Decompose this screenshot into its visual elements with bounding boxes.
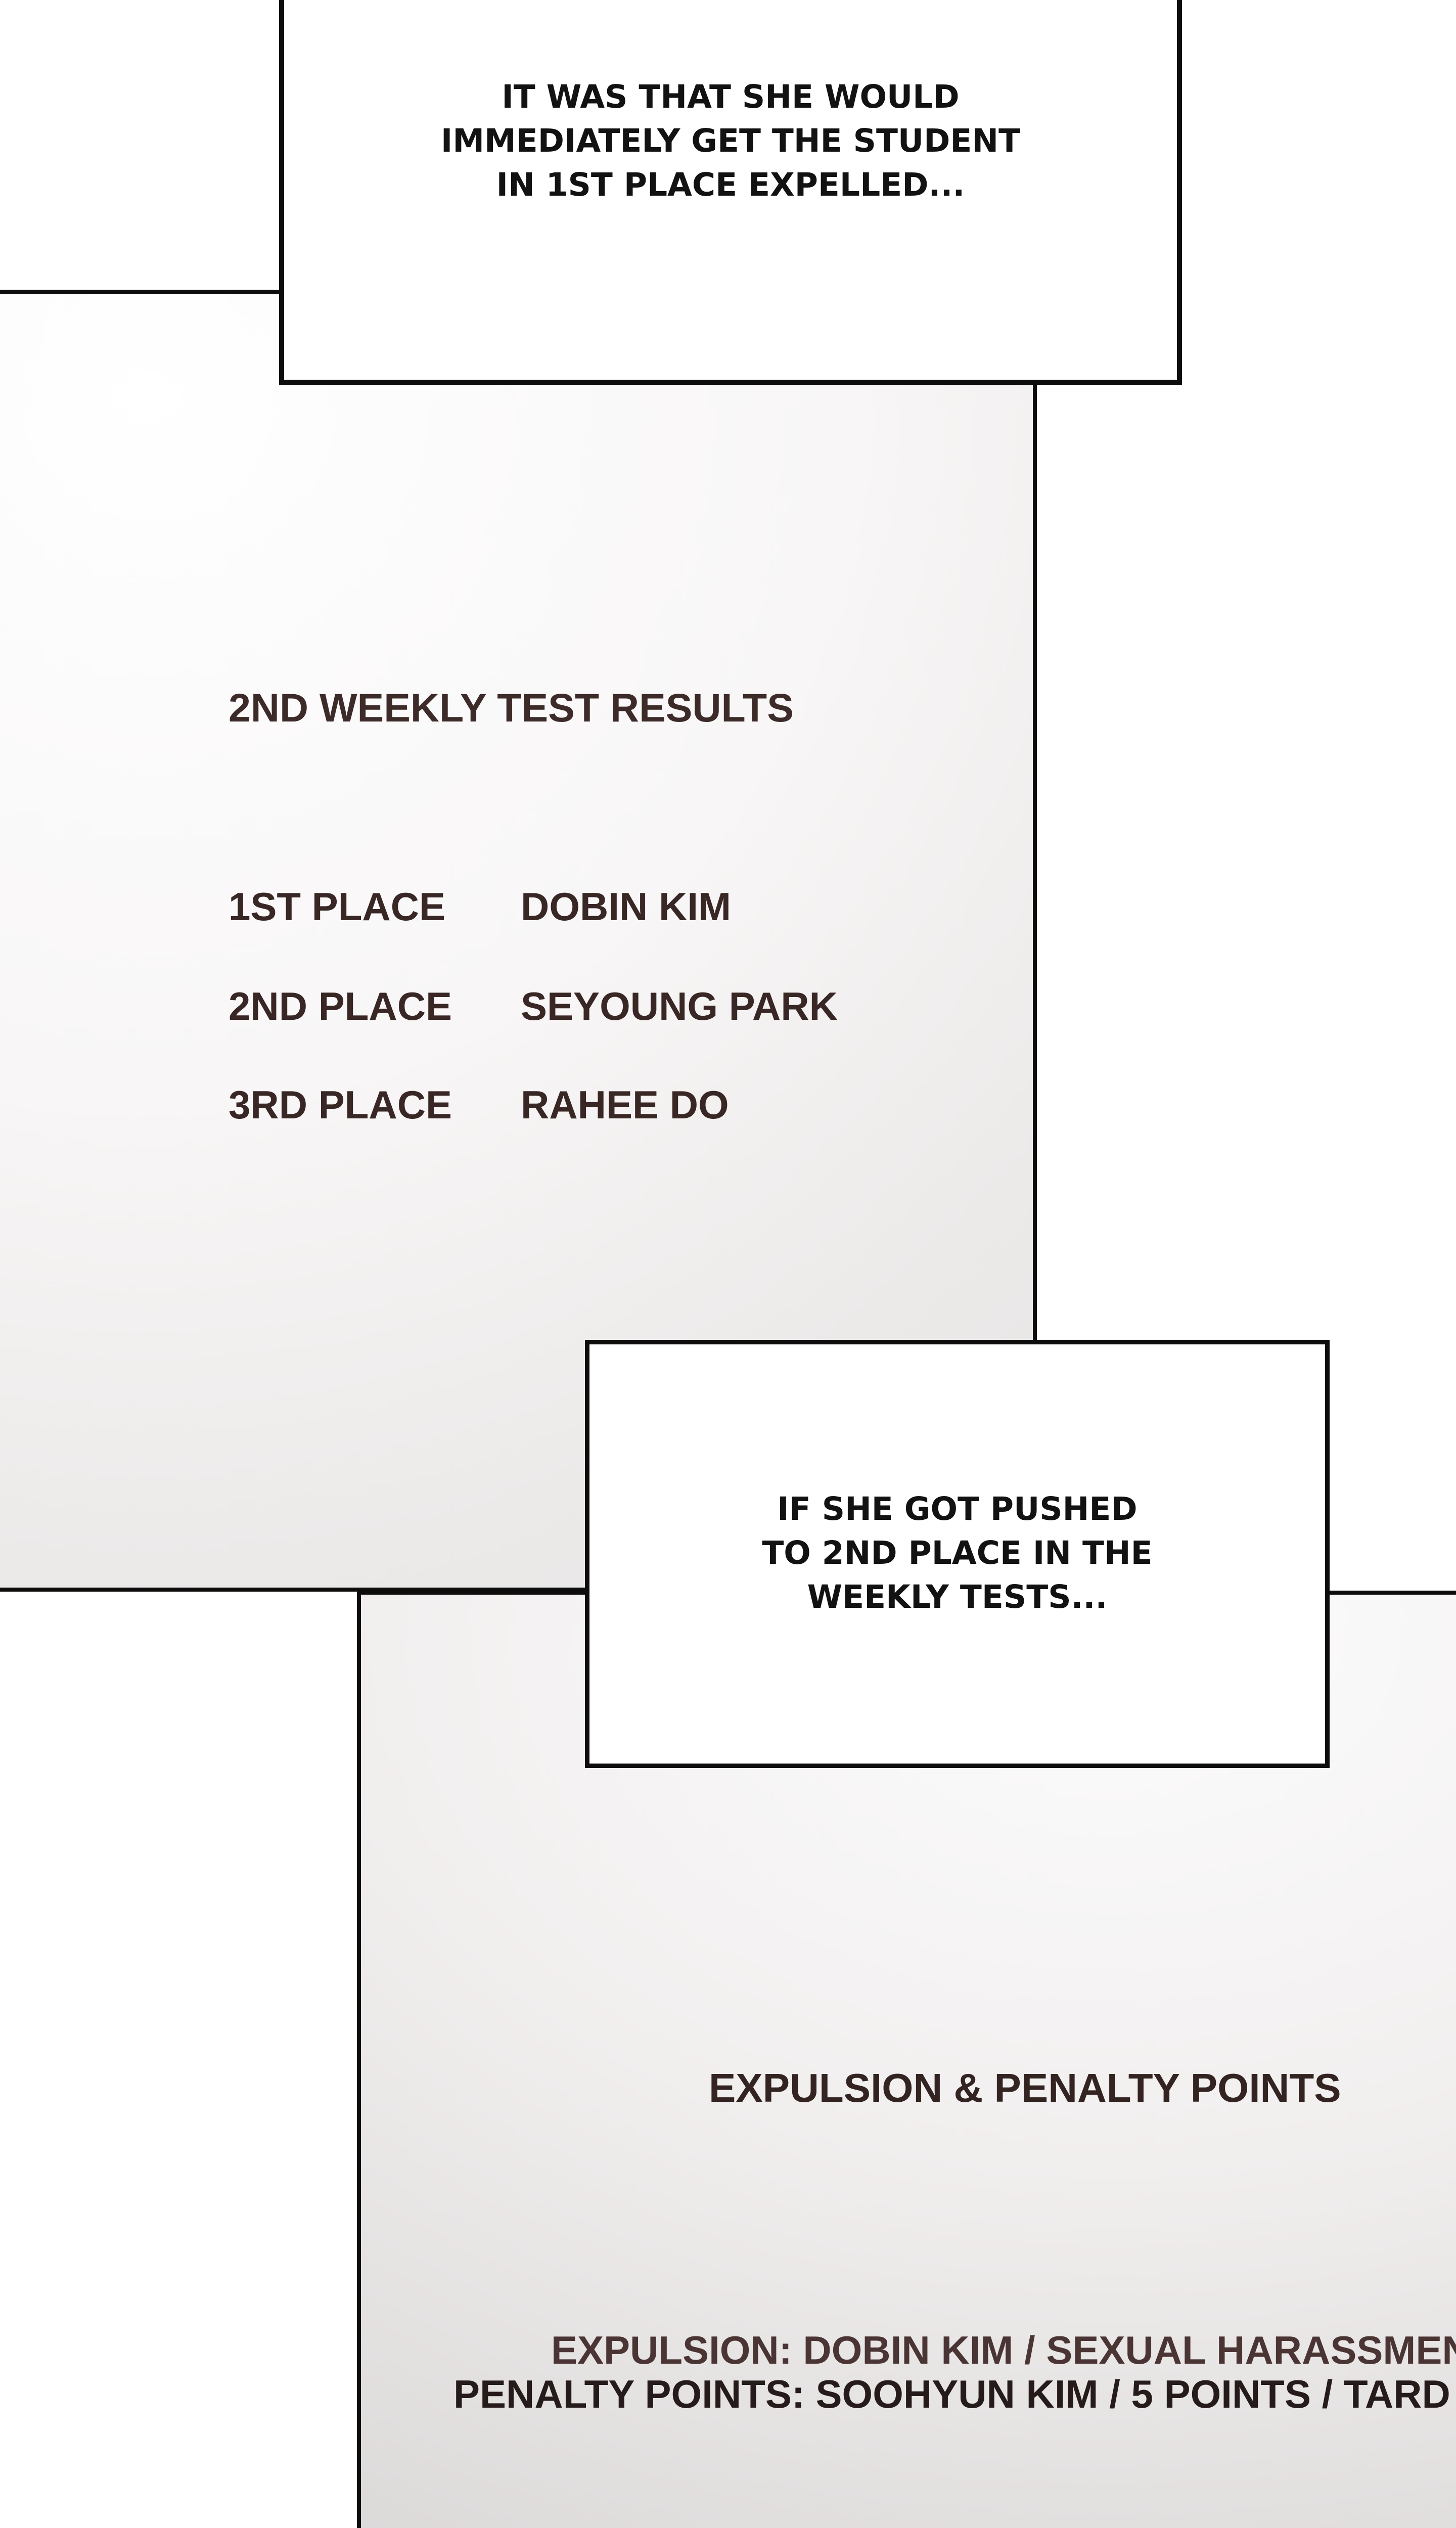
speech-line: IF SHE GOT PUSHED — [589, 1487, 1325, 1531]
result-name: RAHEE DO — [521, 1082, 729, 1127]
result-row: 2ND PLACESEYOUNG PARK — [229, 986, 838, 1026]
result-name: DOBIN KIM — [521, 884, 731, 929]
speech-line: WEEKLY TESTS... — [589, 1575, 1325, 1619]
result-name: SEYOUNG PARK — [521, 984, 838, 1028]
result-place: 1ST PLACE — [229, 886, 521, 927]
penalty-points-line: PENALTY POINTS: SOOHYUN KIM / 5 POINTS /… — [453, 2374, 1450, 2414]
result-place: 2ND PLACE — [229, 986, 521, 1026]
speech-line: IN 1ST PLACE EXPELLED... — [284, 163, 1177, 207]
speech-bubble-mid-text: IF SHE GOT PUSHED TO 2ND PLACE IN THE WE… — [589, 1487, 1325, 1619]
speech-line: IMMEDIATELY GET THE STUDENT — [284, 119, 1177, 163]
speech-line: IT WAS THAT SHE WOULD — [284, 75, 1177, 119]
result-row: 1ST PLACEDOBIN KIM — [229, 886, 731, 927]
result-place: 3RD PLACE — [229, 1085, 521, 1125]
speech-bubble-top-text: IT WAS THAT SHE WOULD IMMEDIATELY GET TH… — [284, 75, 1177, 207]
result-row: 3RD PLACERAHEE DO — [229, 1085, 729, 1125]
speech-line: TO 2ND PLACE IN THE — [589, 1531, 1325, 1575]
penalty-title: EXPULSION & PENALTY POINTS — [709, 2068, 1341, 2108]
expulsion-line: EXPULSION: DOBIN KIM / SEXUAL HARASSMEN — [551, 2330, 1456, 2370]
comic-page: IT WAS THAT SHE WOULD IMMEDIATELY GET TH… — [0, 0, 1456, 2528]
results-title: 2ND WEEKLY TEST RESULTS — [229, 688, 794, 728]
